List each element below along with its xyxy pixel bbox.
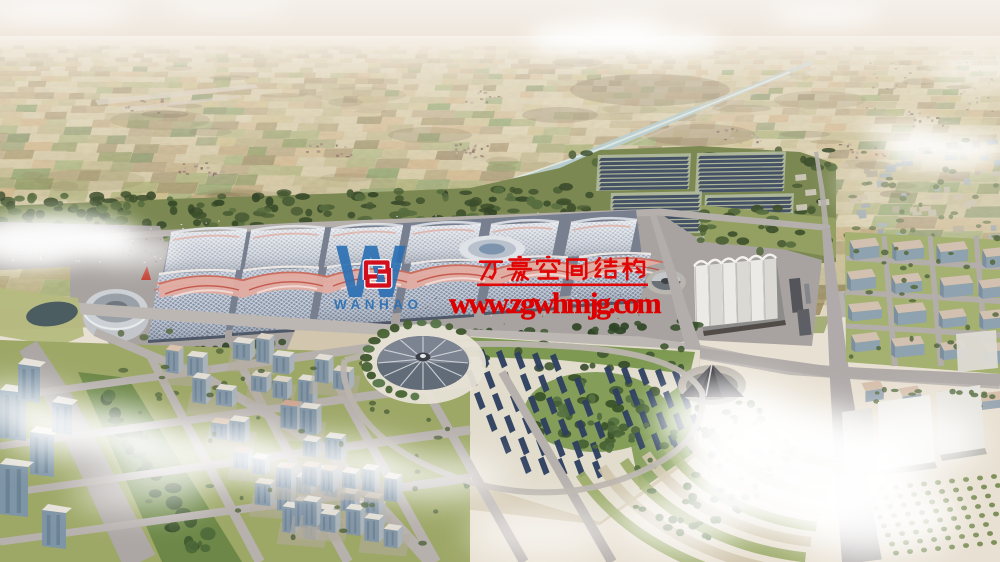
svg-text:www.zgwhmjg.com: www.zgwhmjg.com xyxy=(449,287,662,320)
